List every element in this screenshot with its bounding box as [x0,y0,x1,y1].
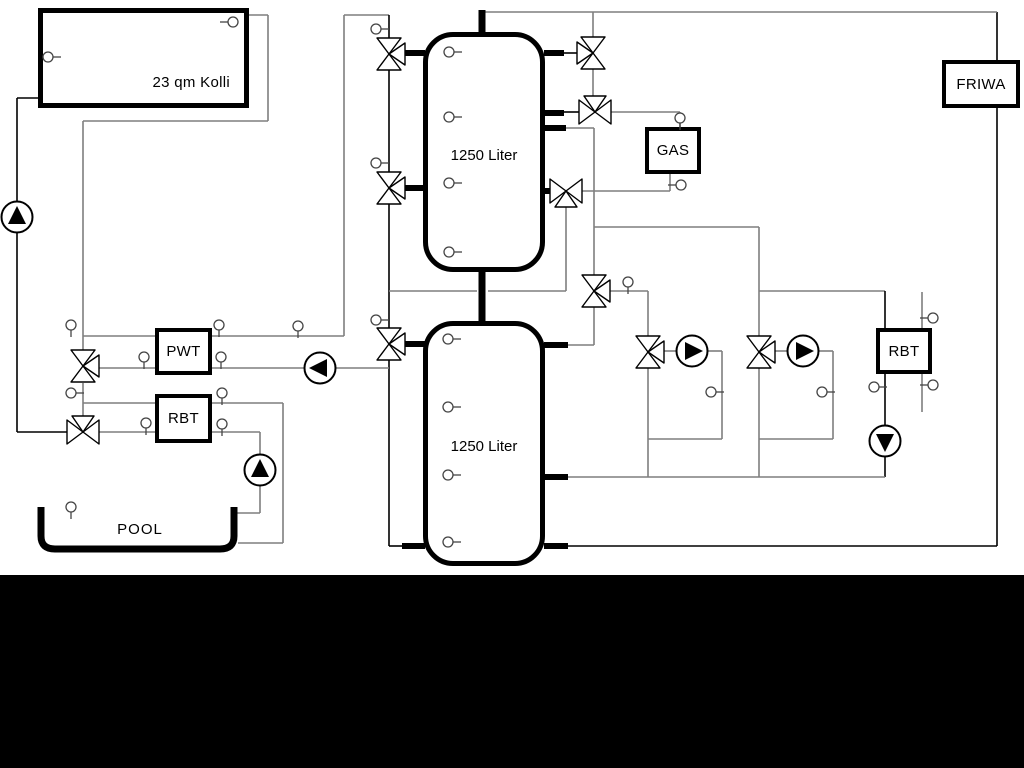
three-way-valve-icon [636,336,664,368]
pump-icon [677,336,708,367]
three-way-valve-icon [67,416,99,444]
temperature-sensor-icon [66,320,76,337]
three-way-valve-icon [582,275,610,307]
sensor-bulb [43,52,53,62]
temperature-sensor-icon [371,315,389,325]
temperature-sensor-icon [444,178,462,188]
sensor-bulb [706,387,716,397]
pump-icon [788,336,819,367]
temperature-sensor-icon [920,380,938,390]
temperature-sensor-icon [869,382,887,392]
temperature-sensor-icon [217,419,227,436]
sensor-bulb [444,178,454,188]
temperature-sensor-icon [444,247,462,257]
three-way-valve-icon [579,96,611,124]
temperature-sensor-icon [668,180,686,190]
three-way-valve-icon [71,350,99,382]
sensor-bulb [928,380,938,390]
temperature-sensor-icon [43,52,61,62]
temperature-sensor-icon [920,313,938,323]
temperature-sensor-icon [214,320,224,337]
temperature-sensor-icon [623,277,633,294]
footer-black-bar [0,575,1024,768]
temperature-sensor-icon [675,113,685,130]
sensor-bulb [371,315,381,325]
sensor-bulb [623,277,633,287]
three-way-valve-icon [377,172,405,204]
sensor-bulb [216,352,226,362]
temperature-sensor-icon [443,537,461,547]
sensor-bulb [869,382,879,392]
temperature-sensor-icon [443,402,461,412]
temperature-sensor-icon [817,387,835,397]
temperature-sensor-icon [139,352,149,369]
temperature-sensor-icon [217,388,227,405]
sensor-bulb [443,470,453,480]
temperature-sensor-icon [216,352,226,369]
sensor-bulb [675,113,685,123]
sensor-bulb [444,47,454,57]
temperature-sensor-icon [443,334,461,344]
sensor-bulb [66,502,76,512]
temperature-sensor-icon [443,470,461,480]
temperature-sensor-icon [706,387,724,397]
sensor-bulb [139,352,149,362]
temperature-sensor-icon [293,321,303,338]
pump-icon [2,202,33,233]
sensor-bulb [371,24,381,34]
sensor-bulb [817,387,827,397]
three-way-valve-icon [747,336,775,368]
three-way-valve-icon [550,179,582,207]
sensor-bulb [444,247,454,257]
three-way-valve-icon [577,37,605,69]
sensor-bulb [214,320,224,330]
sensor-bulb [66,320,76,330]
sensor-bulb [371,158,381,168]
three-way-valve-icon [377,328,405,360]
temperature-sensor-icon [444,47,462,57]
sensor-bulb [217,419,227,429]
sensor-bulb [443,334,453,344]
sensor-bulb [443,537,453,547]
temperature-sensor-icon [66,502,76,519]
sensor-bulb [217,388,227,398]
temperature-sensor-icon [220,17,238,27]
pump-icon [870,426,901,457]
temperature-sensor-icon [141,418,151,435]
sensor-bulb [228,17,238,27]
diagram-canvas: 23 qm Kolli 1250 Liter 1250 Liter PWT RB… [0,0,1024,768]
symbols-layer [0,0,1024,575]
temperature-sensor-icon [371,24,389,34]
pool-basin [41,507,234,549]
temperature-sensor-icon [371,158,389,168]
sensor-bulb [293,321,303,331]
sensor-bulb [444,112,454,122]
sensor-bulb [928,313,938,323]
temperature-sensor-icon [444,112,462,122]
sensor-bulb [443,402,453,412]
sensor-bulb [676,180,686,190]
temperature-sensor-icon [66,388,84,398]
three-way-valve-icon [377,38,405,70]
pump-icon [245,455,276,486]
sensor-bulb [66,388,76,398]
sensor-bulb [141,418,151,428]
pump-icon [305,353,336,384]
